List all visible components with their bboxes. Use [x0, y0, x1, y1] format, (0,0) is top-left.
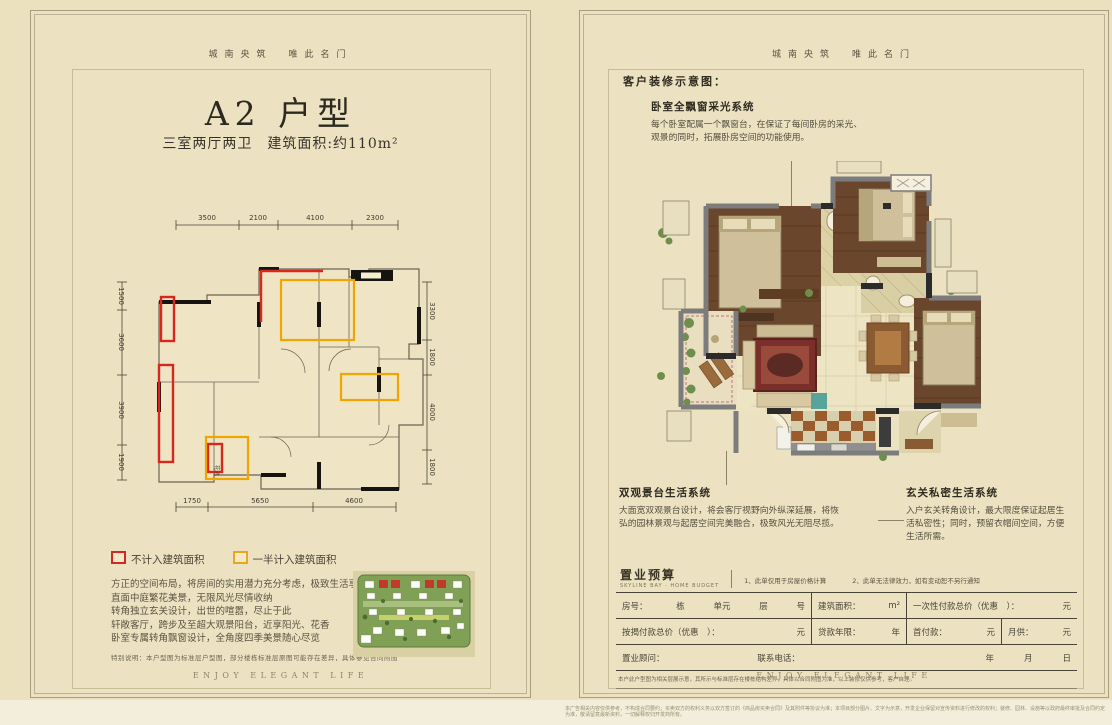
budget-header: 置业预算 SKYLINE BAY · HOME BUDGET 1、此单仅用于房屋…: [616, 567, 1077, 592]
svg-text:1500: 1500: [117, 287, 125, 305]
svg-text:1800: 1800: [428, 348, 436, 366]
annotation-bay-window: 卧室全飘窗采光系统 每个卧室配属一个飘窗台，在保证了每间卧房的采光、观景的同时，…: [651, 99, 866, 145]
yellow-swatch-icon: [233, 551, 248, 564]
page-subtitle: 三室两厅两卫 建筑面积:约110m²: [31, 133, 530, 153]
unit-label: 元: [796, 626, 805, 638]
floorplan-rendered-svg: [651, 161, 981, 481]
brochure-page-left: 城南央筑 唯此名门 A2 户型 三室两厅两卫 建筑面积:约110m²: [30, 10, 531, 698]
field-label: 按揭付款总价（优惠 ）：: [622, 626, 720, 638]
area-legend: 不计入建筑面积 一半计入建筑面积: [111, 551, 337, 567]
description-line: 轩敞客厅，跨步及至超大观景阳台，近享阳光、花香: [111, 619, 381, 633]
cell-loan-term: 贷款年限： 年: [811, 619, 906, 644]
page-motto: 城南央筑 唯此名门: [31, 47, 530, 60]
floorplan-rendered: [651, 161, 981, 481]
description-block: 方正的空间布局，将房间的实用潜力充分考虑，极致生活享有 直面中庭繁花美景，无限风…: [111, 578, 381, 646]
svg-text:2300: 2300: [366, 214, 384, 222]
annotation-body: 入户玄关转角设计，最大限度保证起居生活私密性；同时，预留衣帽间空间，方便生活所需…: [906, 505, 1071, 544]
annotation-private-entry: 玄关私密生活系统 入户玄关转角设计，最大限度保证起居生活私密性；同时，预留衣帽间…: [906, 485, 1071, 544]
budget-row-2: 按揭付款总价（优惠 ）： 元 贷款年限： 年 首付款： 元 月供： 元: [616, 618, 1077, 644]
cell-consultant: 置业顾问： 联系电话： 年 月 日: [616, 645, 1077, 670]
divider: [731, 570, 732, 588]
svg-text:2100: 2100: [249, 214, 267, 222]
svg-text:1750: 1750: [183, 497, 201, 505]
budget-note: 2、此单无法律效力，如有变动恕不另行通知: [852, 575, 980, 585]
svg-text:4600: 4600: [345, 497, 363, 505]
unit-label: 号: [797, 600, 806, 612]
siteplan-svg: [353, 571, 475, 657]
field-label: 月供：: [1008, 626, 1034, 638]
svg-text:4000: 4000: [428, 403, 436, 421]
bottom-disclaimer-strip: 本广告相关内容仅供参考，不构成合同要约；买卖双方的权利义务以双方签订的《商品房买…: [0, 700, 1112, 725]
budget-title: 置业预算: [620, 569, 719, 581]
svg-text:3500: 3500: [198, 214, 216, 222]
date-label: 日: [1063, 652, 1072, 664]
page-footer-slogan: ENJOY ELEGANT LIFE: [31, 671, 530, 680]
field-label: 首付款：: [913, 626, 947, 638]
description-line: 方正的空间布局，将房间的实用潜力充分考虑，极致生活享有: [111, 578, 381, 592]
description-line: 转角独立玄关设计，出世的喧嚣，尽止于此: [111, 605, 381, 619]
leader-line: [726, 451, 727, 485]
unit-label: 单元: [714, 600, 731, 612]
annotation-viewing-balcony: 双观景台生活系统 大面宽双观景台设计，将会客厅视野向外纵深延展，将恢弘的园林景观…: [619, 485, 844, 531]
svg-text:5650: 5650: [251, 497, 269, 505]
decoration-diagram-heading: 客户装修示意图：: [623, 73, 727, 89]
description-line: 直面中庭繁花美景，无限风光尽情收纳: [111, 592, 381, 606]
cell-monthly-payment: 月供： 元: [1001, 619, 1077, 644]
annotation-title: 双观景台生活系统: [619, 485, 844, 500]
field-label: 建筑面积：: [818, 600, 861, 612]
svg-text:4100: 4100: [306, 214, 324, 222]
page-footer-slogan: ENJOY ELEGANT LIFE: [580, 671, 1108, 680]
cell-down-payment: 首付款： 元: [906, 619, 1001, 644]
disclaimer-text: 本广告相关内容仅供参考，不构成合同要约；买卖双方的权利义务以双方签订的《商品房买…: [565, 706, 1105, 718]
unit-label: 年: [891, 626, 900, 638]
field-label: 贷款年限：: [818, 626, 861, 638]
budget-title-block: 置业预算 SKYLINE BAY · HOME BUDGET: [620, 569, 719, 589]
floorplan-technical: 3500 2100 4100 2300 1500 3600 3900 1900 …: [111, 207, 441, 513]
svg-text:3900: 3900: [117, 401, 125, 419]
svg-text:1900: 1900: [117, 453, 125, 471]
page-motto: 城南央筑 唯此名门: [580, 47, 1108, 60]
annotation-title: 玄关私密生活系统: [906, 485, 1071, 500]
field-label: 联系电话：: [757, 652, 800, 664]
field-label: 一次性付款总价（优惠 ）：: [913, 600, 1019, 612]
budget-table: 房号： 栋 单元 层 号 建筑面积： m² 一次性付款总价（优惠 ）： 元 按揭…: [616, 592, 1077, 671]
field-label: 置业顾问：: [622, 652, 665, 664]
cell-room-number: 房号： 栋 单元 层 号: [616, 593, 811, 618]
svg-text:1800: 1800: [428, 458, 436, 476]
cell-floor-area: 建筑面积： m²: [811, 593, 906, 618]
brochure-page-right: 城南央筑 唯此名门 客户装修示意图： 卧室全飘窗采光系统 每个卧室配属一个飘窗台…: [579, 10, 1109, 698]
legend-item: 不计入建筑面积: [111, 551, 205, 567]
unit-label: 层: [759, 600, 768, 612]
date-label: 月: [1024, 652, 1033, 664]
budget-subtitle: SKYLINE BAY · HOME BUDGET: [620, 583, 719, 589]
date-label: 年: [985, 652, 994, 664]
svg-text:3300: 3300: [428, 302, 436, 320]
siteplan-thumbnail: [353, 571, 475, 657]
annotation-body: 大面宽双观景台设计，将会客厅视野向外纵深延展，将恢弘的园林景观与起居空间完美融合…: [619, 505, 844, 531]
unit-label: 元: [1062, 600, 1071, 612]
cell-mortgage-total: 按揭付款总价（优惠 ）： 元: [616, 619, 811, 644]
budget-notes: 1、此单仅用于房屋价格计算 2、此单无法律效力，如有变动恕不另行通知: [744, 575, 980, 585]
description-line: 卧室专属转角飘窗设计，全角度四季美景随心尽览: [111, 632, 381, 646]
budget-note: 1、此单仅用于房屋价格计算: [744, 575, 826, 585]
annotation-body: 每个卧室配属一个飘窗台，在保证了每间卧房的采光、观景的同时，拓展卧房空间的功能使…: [651, 119, 866, 145]
legend-item: 一半计入建筑面积: [233, 551, 337, 567]
budget-row-1: 房号： 栋 单元 层 号 建筑面积： m² 一次性付款总价（优惠 ）： 元: [616, 593, 1077, 618]
legend-label: 不计入建筑面积: [131, 554, 205, 566]
legend-label: 一半计入建筑面积: [253, 554, 337, 566]
page-title: A2 户型: [31, 87, 530, 135]
annotation-title: 卧室全飘窗采光系统: [651, 99, 866, 114]
red-swatch-icon: [111, 551, 126, 564]
budget-row-3: 置业顾问： 联系电话： 年 月 日: [616, 644, 1077, 670]
cell-lump-sum: 一次性付款总价（优惠 ）： 元: [906, 593, 1077, 618]
unit-label: 元: [986, 626, 995, 638]
unit-label: 栋: [676, 600, 685, 612]
plan-label-flowerbed: 花池: [213, 465, 221, 477]
unit-label: 元: [1062, 626, 1071, 638]
floorplan-technical-svg: 3500 2100 4100 2300 1500 3600 3900 1900 …: [111, 207, 441, 513]
plan-walls: [159, 269, 423, 489]
field-label: 房号：: [622, 600, 648, 612]
leader-line: [878, 520, 904, 521]
unit-label: m²: [888, 601, 900, 611]
svg-text:3600: 3600: [117, 333, 125, 351]
